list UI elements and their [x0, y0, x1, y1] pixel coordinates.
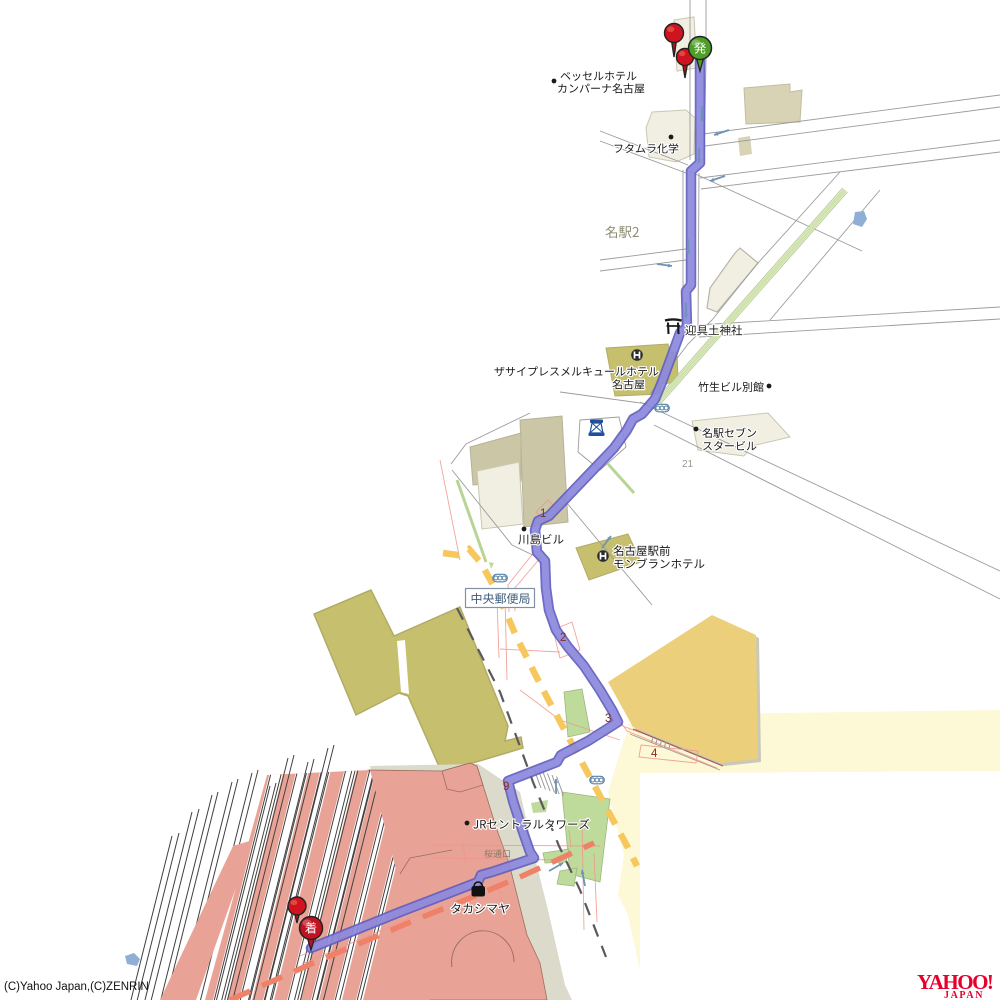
svg-text:9: 9 [503, 781, 509, 793]
svg-text:1: 1 [540, 508, 546, 520]
svg-text:21: 21 [682, 459, 694, 470]
svg-text:JAPAN: JAPAN [944, 990, 984, 1000]
svg-text:2: 2 [560, 632, 566, 644]
svg-text:4: 4 [651, 748, 658, 760]
svg-text:(C)Yahoo Japan,(C)ZENRIN: (C)Yahoo Japan,(C)ZENRIN [4, 981, 149, 993]
svg-text:3: 3 [605, 713, 611, 725]
